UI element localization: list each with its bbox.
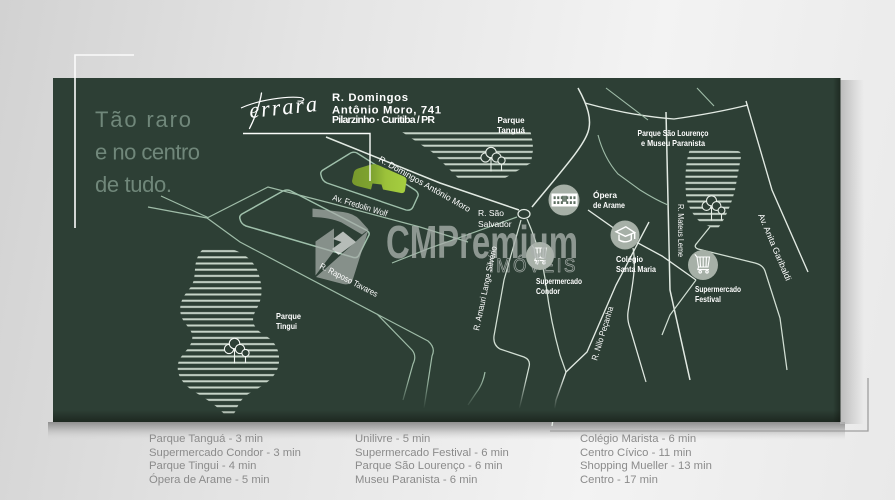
svg-text:Supermercado: Supermercado: [536, 277, 582, 286]
svg-text:Pilarzinho · Curitiba / PR: Pilarzinho · Curitiba / PR: [332, 114, 435, 126]
svg-text:Unilivre - 5 min: Unilivre - 5 min: [355, 433, 430, 445]
svg-text:Festival: Festival: [695, 295, 721, 304]
svg-text:Tão raro: Tão raro: [95, 107, 191, 132]
svg-text:R. São: R. São: [478, 208, 504, 218]
svg-text:Santa Maria: Santa Maria: [616, 265, 656, 274]
svg-text:Parque Tanguá - 3 min: Parque Tanguá - 3 min: [149, 433, 263, 445]
svg-text:Tingui: Tingui: [276, 322, 297, 331]
svg-text:de Arame: de Arame: [593, 201, 625, 210]
svg-text:Condor: Condor: [536, 287, 561, 296]
svg-text:Parque: Parque: [498, 116, 525, 125]
svg-text:Supermercado Condor - 3 min: Supermercado Condor - 3 min: [149, 447, 301, 459]
svg-text:Shopping Mueller - 13 min: Shopping Mueller - 13 min: [580, 460, 712, 472]
svg-text:Ópera: Ópera: [593, 189, 617, 200]
svg-text:R. Mateus Leme: R. Mateus Leme: [676, 204, 686, 257]
svg-text:e no centro: e no centro: [95, 140, 200, 165]
svg-text:Centro Cívico - 11 min: Centro Cívico - 11 min: [580, 447, 692, 459]
svg-text:de tudo.: de tudo.: [95, 172, 172, 197]
svg-text:Parque São Lourenço: Parque São Lourenço: [638, 129, 709, 138]
svg-text:R. Domingos: R. Domingos: [332, 92, 408, 104]
svg-text:Parque São Lourenço - 6 min: Parque São Lourenço - 6 min: [355, 460, 503, 472]
svg-text:e Museu Paranista: e Museu Paranista: [641, 139, 705, 148]
svg-text:Tanguá: Tanguá: [497, 126, 525, 135]
svg-text:Supermercado Festival - 6 min: Supermercado Festival - 6 min: [355, 447, 509, 459]
svg-text:Parque: Parque: [276, 312, 301, 321]
svg-text:Parque Tingui - 4 min: Parque Tingui - 4 min: [149, 460, 256, 472]
svg-text:Colégio Marista - 6 min: Colégio Marista - 6 min: [580, 433, 696, 445]
svg-text:Supermercado: Supermercado: [695, 285, 741, 294]
svg-text:Salvador: Salvador: [478, 219, 512, 229]
svg-text:Colégio: Colégio: [616, 255, 643, 264]
svg-text:Museu Paranista - 6 min: Museu Paranista - 6 min: [355, 474, 477, 486]
svg-text:IMÓVEIS: IMÓVEIS: [489, 254, 578, 277]
svg-text:Centro - 17 min: Centro - 17 min: [580, 474, 658, 486]
svg-text:Ópera de Arame - 5 min: Ópera de Arame - 5 min: [149, 473, 270, 486]
